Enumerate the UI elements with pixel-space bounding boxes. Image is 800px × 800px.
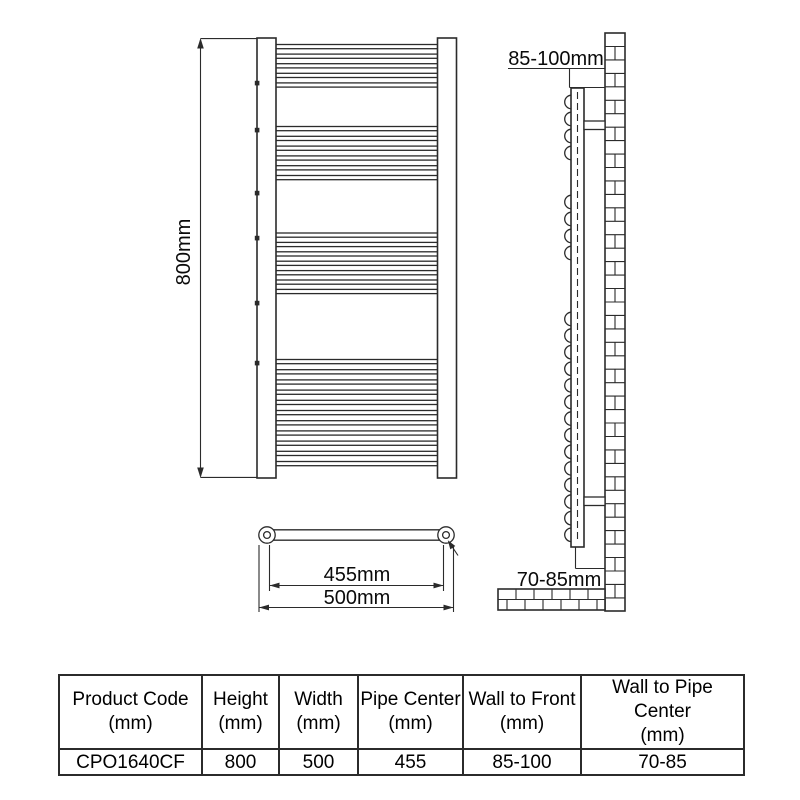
arrow-up-icon — [197, 38, 204, 49]
col-unit: (mm) — [203, 712, 278, 736]
bracket-mark — [255, 361, 260, 366]
radiator-rung — [276, 451, 439, 455]
radiator-rung — [276, 233, 439, 237]
radiator-rung — [276, 45, 439, 49]
radiator-rung — [276, 64, 439, 68]
col-unit: (mm) — [582, 724, 743, 748]
bracket-mark — [255, 191, 260, 196]
col-unit: (mm) — [464, 712, 580, 736]
radiator-rung — [276, 441, 439, 445]
radiator-rungs — [276, 45, 439, 466]
spec-data-row: CPO1640CF 800 500 455 85-100 70-85 — [59, 749, 744, 775]
col-label: Height — [203, 688, 278, 712]
radiator-dimension-drawing: 800mm 85-100mm — [0, 0, 800, 800]
radiator-rung — [276, 146, 439, 150]
col-unit: (mm) — [280, 712, 357, 736]
radiator-rung — [276, 390, 439, 394]
cell-width: 500 — [279, 749, 358, 775]
arrow-down-icon — [197, 468, 204, 479]
spec-header-row: Product Code (mm) Height (mm) Width (mm)… — [59, 675, 744, 749]
cell-height: 800 — [202, 749, 279, 775]
bracket-mark — [255, 301, 260, 306]
col-unit: (mm) — [60, 712, 201, 736]
side-view: 85-100mm 70-85mm — [498, 33, 625, 611]
front-view: 800mm — [173, 38, 457, 478]
front-left-rail — [257, 38, 276, 478]
radiator-rung — [276, 127, 439, 131]
height-dimension-label: 800mm — [173, 219, 195, 286]
arrow-right-icon — [434, 583, 444, 589]
col-width: Width (mm) — [279, 675, 358, 749]
radiator-rung — [276, 462, 439, 466]
radiator-rung — [276, 400, 439, 404]
col-label: Width — [280, 688, 357, 712]
col-wall-to-pipe-center: Wall to Pipe Center (mm) — [581, 675, 744, 749]
col-unit: (mm) — [359, 712, 462, 736]
radiator-rung — [276, 421, 439, 425]
radiator-rung — [276, 370, 439, 374]
pipe-center-label: 455mm — [324, 564, 391, 586]
radiator-rung — [276, 261, 439, 265]
col-product-code: Product Code (mm) — [59, 675, 202, 749]
col-wall-to-front: Wall to Front (mm) — [463, 675, 581, 749]
bottom-view: 455mm 500mm — [259, 527, 458, 612]
radiator-rung — [276, 431, 439, 435]
radiator-rung — [276, 156, 439, 160]
bracket-mark — [255, 128, 260, 133]
radiator-rung — [276, 360, 439, 364]
arrow-right-icon — [444, 605, 454, 611]
col-height: Height (mm) — [202, 675, 279, 749]
wall-to-pipe-label: 70-85mm — [517, 569, 601, 591]
col-pipe-center: Pipe Center (mm) — [358, 675, 463, 749]
wall-to-front-label: 85-100mm — [508, 48, 604, 70]
col-label: Wall to Front — [464, 688, 580, 712]
radiator-rung — [276, 242, 439, 246]
bracket-mark — [255, 81, 260, 86]
cell-product-code: CPO1640CF — [59, 749, 202, 775]
bracket-mark — [255, 236, 260, 241]
radiator-rung — [276, 411, 439, 415]
overall-width-label: 500mm — [324, 587, 391, 609]
plan-left-pipe — [264, 532, 271, 539]
cell-wall-to-pipe-center: 70-85 — [581, 749, 744, 775]
cell-wall-to-front: 85-100 — [463, 749, 581, 775]
col-label: Product Code — [60, 688, 201, 712]
radiator-rung — [276, 271, 439, 275]
wall-bracket-top — [584, 121, 605, 130]
arrow-left-icon — [270, 583, 280, 589]
col-label: Pipe Center — [359, 688, 462, 712]
spec-table: Product Code (mm) Height (mm) Width (mm)… — [58, 674, 745, 776]
radiator-rung — [276, 280, 439, 284]
radiator-rung — [276, 136, 439, 140]
front-right-rail — [438, 38, 457, 478]
plan-right-pipe — [443, 532, 450, 539]
cell-pipe-center: 455 — [358, 749, 463, 775]
radiator-rung — [276, 176, 439, 180]
radiator-rung — [276, 166, 439, 170]
arrow-left-icon — [259, 605, 269, 611]
radiator-rung — [276, 252, 439, 256]
col-label: Wall to Pipe Center — [582, 676, 743, 724]
wall-bracket-bottom — [584, 497, 605, 506]
radiator-rung — [276, 380, 439, 384]
radiator-rung — [276, 83, 439, 87]
radiator-rung — [276, 73, 439, 77]
radiator-rung — [276, 289, 439, 293]
radiator-rung — [276, 54, 439, 58]
